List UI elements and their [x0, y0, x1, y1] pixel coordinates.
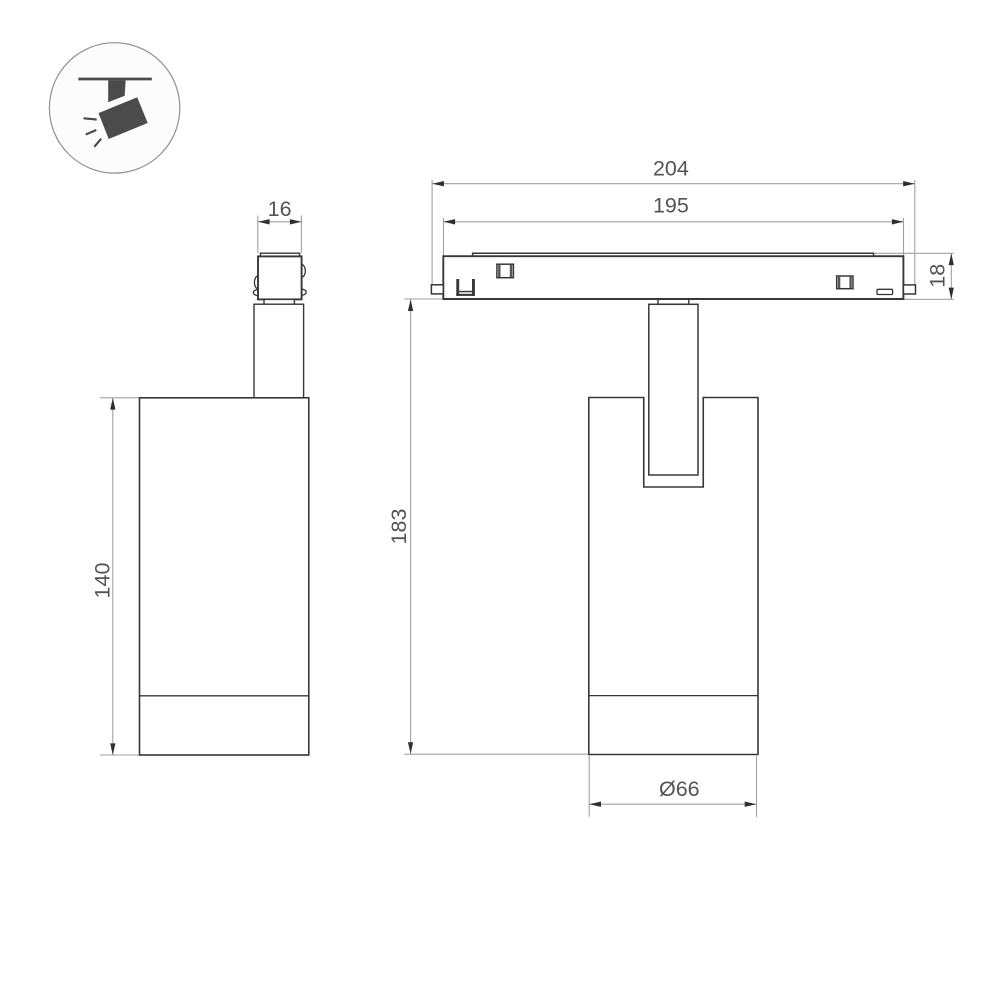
svg-text:16: 16 [268, 197, 292, 221]
svg-text:18: 18 [926, 264, 950, 288]
svg-text:Ø66: Ø66 [659, 777, 700, 801]
svg-text:204: 204 [653, 156, 689, 180]
svg-text:195: 195 [653, 193, 689, 217]
svg-text:183: 183 [387, 509, 411, 545]
svg-text:140: 140 [90, 563, 114, 599]
